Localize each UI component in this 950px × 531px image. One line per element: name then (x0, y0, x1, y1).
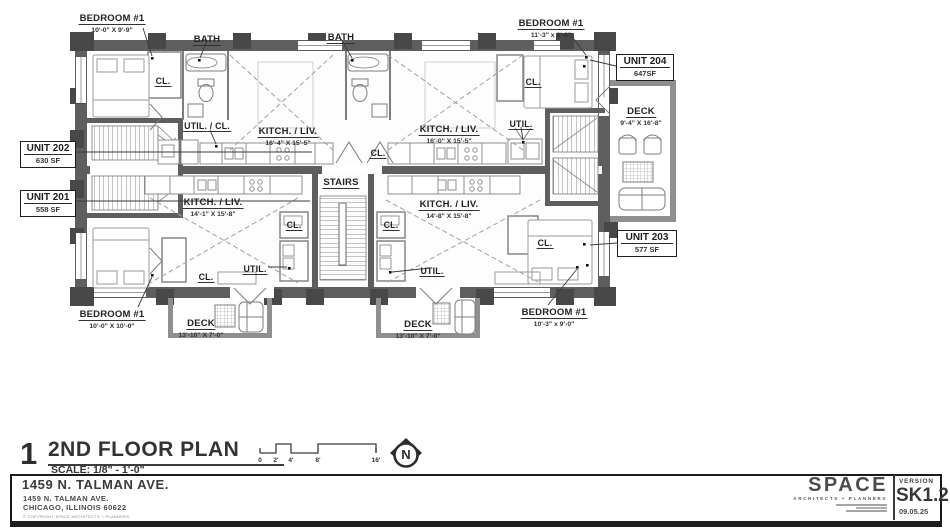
room-label-bath-left: BATH (193, 29, 221, 47)
sheet-number: SK1.2 (896, 485, 949, 507)
room-label-bedroom-bottom-left: BEDROOM #1 10'-0" X 10'-0" (79, 304, 146, 330)
room-label-util-cl: UTIL. / CL. (183, 116, 231, 134)
room-label-kitch-203: KITCH. / LIV. 14'-8" X 15'-8" (419, 194, 480, 220)
room-label-stairs: STAIRS (322, 172, 359, 190)
room-label-util-bottom-middle: UTIL. (420, 261, 445, 279)
closet-label-core-right: CL. (383, 215, 400, 233)
room-label-kitch-202: KITCH. / LIV. 16'-4" X 15'-5" (258, 121, 319, 147)
plan-title: 2ND FLOOR PLAN (48, 438, 284, 466)
room-label-deck-bottom-middle: DECK 13'-10" X 7'-0" (395, 314, 440, 340)
unit-tag-203: UNIT 203 577 SF (617, 230, 677, 257)
scale-tick-2: 2' (273, 457, 278, 464)
firm-subtitle: ARCHITECTS + PLANNERS (770, 496, 887, 501)
closet-label-bottom-right: CL. (537, 233, 554, 251)
closet-label-core-left: CL. (286, 215, 303, 233)
copyright-note: © COPYRIGHT SPACE ARCHITECTS + PLANNERS (23, 514, 129, 519)
firm-contact-line (856, 507, 887, 509)
scale-tick-16: 16' (372, 457, 381, 464)
project-address-line1: 1459 N. TALMAN AVE. (23, 494, 109, 503)
unit-tag-202: UNIT 202 630 SF (20, 141, 76, 168)
version-label: VERSION (899, 478, 934, 485)
firm-logo: SPACE (770, 474, 888, 497)
plan-number: 1 (20, 436, 37, 472)
unit-tag-201: UNIT 201 558 SF (20, 190, 76, 217)
firm-contact-line (836, 504, 887, 506)
project-address-line2: CHICAGO, ILLINOIS 60622 (23, 503, 126, 512)
room-label-util-bottom-left: UTIL. (243, 259, 268, 277)
drawing-sheet: BEDROOM #1 10'-0" X 9'-9" BATH BATH BEDR… (0, 0, 950, 531)
closet-label-top-left: CL. (155, 71, 172, 89)
room-label-bedroom-top-right: BEDROOM #1 11'-3" x 8'-8" (518, 13, 585, 39)
room-label-kitch-201: KITCH. / LIV. 14'-1" X 15'-8" (183, 192, 244, 218)
firm-contact-line (846, 510, 887, 512)
closet-label-mid: CL. (370, 143, 387, 161)
closet-label-bottom-left: CL. (198, 267, 215, 285)
room-label-deck-right: DECK 9'-4" X 16'-8" (620, 101, 661, 127)
title-block-bottom-bar (10, 521, 942, 527)
room-label-bedroom-top-left: BEDROOM #1 10'-0" X 9'-9" (79, 8, 146, 34)
closet-label-top-right: CL. (525, 72, 542, 90)
sheet-date: 09.05.25 (899, 507, 928, 516)
room-label-kitch-204: KITCH. / LIV. 16'-0" X 15'-5" (419, 119, 480, 145)
room-dims: 10'-0" X 9'-9" (79, 27, 146, 34)
room-name: BEDROOM #1 (79, 13, 146, 25)
unit-tag-204: UNIT 204 647SF (616, 54, 674, 81)
scale-tick-4: 4' (288, 457, 293, 464)
scale-tick-8: 8' (315, 457, 320, 464)
room-label-bath-middle: BATH (327, 27, 355, 45)
room-label-util-top-right: UTIL. (509, 114, 534, 132)
project-title: 1459 N. TALMAN AVE. (22, 477, 169, 492)
scale-tick-0: 0 (258, 457, 262, 464)
title-block-divider (893, 475, 895, 520)
room-label-deck-bottom-left: DECK 13'-10" X 7'-0" (178, 313, 223, 339)
north-arrow-letter: N (401, 447, 410, 462)
plan-scale: SCALE: 1/8" - 1'-0" (51, 464, 145, 476)
room-label-bedroom-bottom-right: BEDROOM #1 10'-3" x 9'-0" (521, 302, 588, 328)
